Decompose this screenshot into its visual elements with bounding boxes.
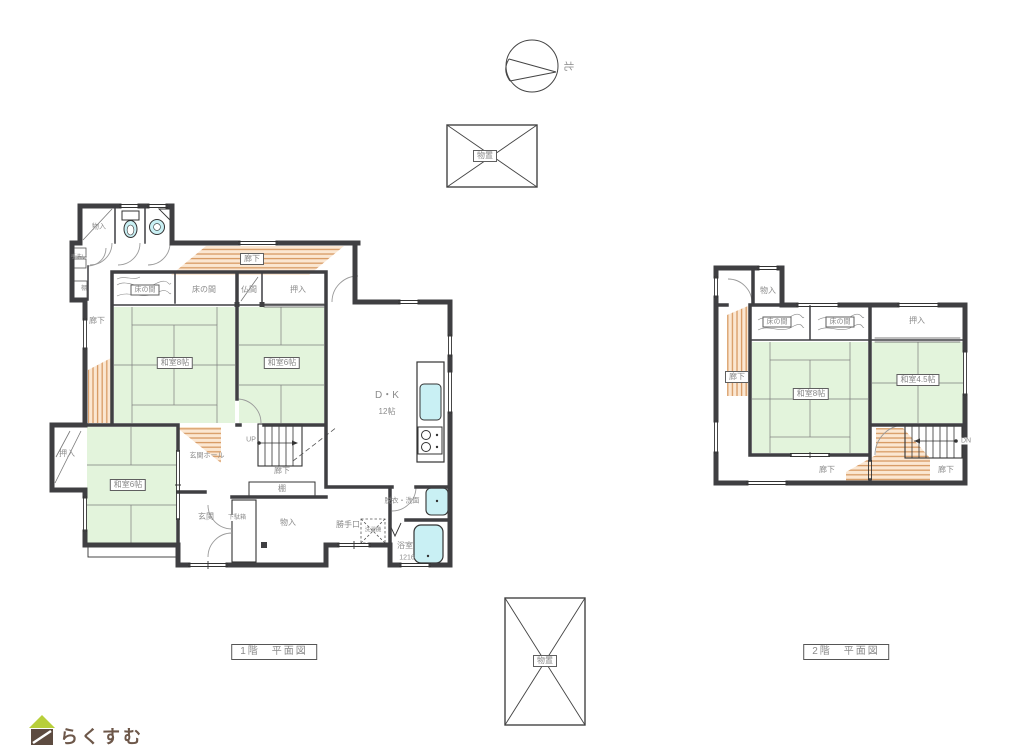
floor2-caption: 2階 平面図 [803, 644, 889, 660]
room-label-rouka-b1-f2: 廊下 [819, 466, 835, 474]
room-label-tokonoma-a: 床の間 [131, 285, 160, 296]
compass-icon [506, 40, 558, 92]
room-label-tokonoma-b: 床の間 [192, 286, 216, 294]
post [261, 542, 267, 548]
corner-sink [159, 209, 171, 221]
room-label-rouka-mid: 廊下 [274, 467, 290, 475]
floorplan-page: 物入 手洗い 棚 廊下 床の間 床の間 仏間 押入 廊下 和室8帖 和室6帖 D… [0, 0, 1025, 748]
shoe-cabinet [232, 500, 256, 562]
room-label-washitsu45-f2: 和室4.5帖 [896, 374, 939, 386]
room-label-monoire-low: 物入 [280, 519, 296, 527]
kitchen-sink [420, 384, 441, 420]
room-label-rouka-b2-f2: 廊下 [938, 466, 954, 474]
bathtub [414, 525, 443, 563]
stairs-up-label: UP [246, 437, 256, 444]
room-label-rouka-left: 廊下 [89, 317, 105, 325]
room-label-oshiire-sw: 押入 [59, 450, 75, 458]
logo-house-icon [29, 715, 55, 745]
room-label-washitsu8-f2: 和室8帖 [793, 388, 829, 400]
room-label-katteguchi: 勝手口 [336, 521, 360, 529]
room-label-tokonoma-a-f2: 床の間 [763, 317, 792, 328]
room-label-genkan-hall: 玄関ホール [190, 453, 225, 460]
room-label-rouka-top: 廊下 [240, 253, 264, 265]
room-label-washitsu6-ne: 和室6帖 [264, 357, 300, 369]
veranda-step [88, 546, 178, 557]
room-label-oshiire-f2: 押入 [909, 317, 925, 325]
toilet-tank [122, 211, 139, 220]
floor1-caption: 1階 平面図 [231, 644, 317, 660]
room-label-tearai: 手洗い [71, 255, 88, 261]
room-label-getabako: 下駄箱 [227, 515, 247, 521]
room-label-tokonoma-b-f2: 床の間 [826, 317, 855, 328]
room-label-yokushitsu: 浴室 [397, 542, 413, 550]
logo-text: らくすむ [60, 723, 144, 748]
compass-north-label: 北 [562, 61, 572, 71]
shed-top-label: 物置 [473, 150, 497, 162]
tatami-fills [87, 307, 963, 543]
stairs-dn-label: DN [960, 438, 972, 445]
room-label-washitsu8: 和室8帖 [157, 357, 193, 369]
room-label-oshiire-top: 押入 [290, 286, 306, 294]
room-label-dk-size: 12帖 [379, 408, 396, 416]
room-label-monoire-top: 物入 [92, 224, 106, 231]
hatch-corridor-left-f1 [88, 358, 111, 423]
room-label-tana-left: 棚 [81, 286, 87, 292]
room-label-tana-shelf: 棚 [278, 485, 286, 493]
room-label-genkan: 玄関 [198, 513, 214, 521]
floorplan-linework [0, 0, 1025, 748]
room-label-washitsu6-sw: 和室6帖 [110, 479, 146, 491]
room-label-dk: D・K [375, 391, 399, 401]
washing-machine-label: 洗濯機 [365, 528, 382, 534]
shed-bottom-label: 物置 [533, 655, 557, 667]
bath-size-label: 1216 [399, 555, 415, 562]
room-label-monoire-f2: 物入 [760, 287, 776, 295]
room-label-rouka-left-f2: 廊下 [725, 371, 749, 383]
room-label-datsui-senmen: 脱衣・洗面 [385, 498, 420, 505]
room-label-butsuma: 仏間 [241, 286, 257, 294]
